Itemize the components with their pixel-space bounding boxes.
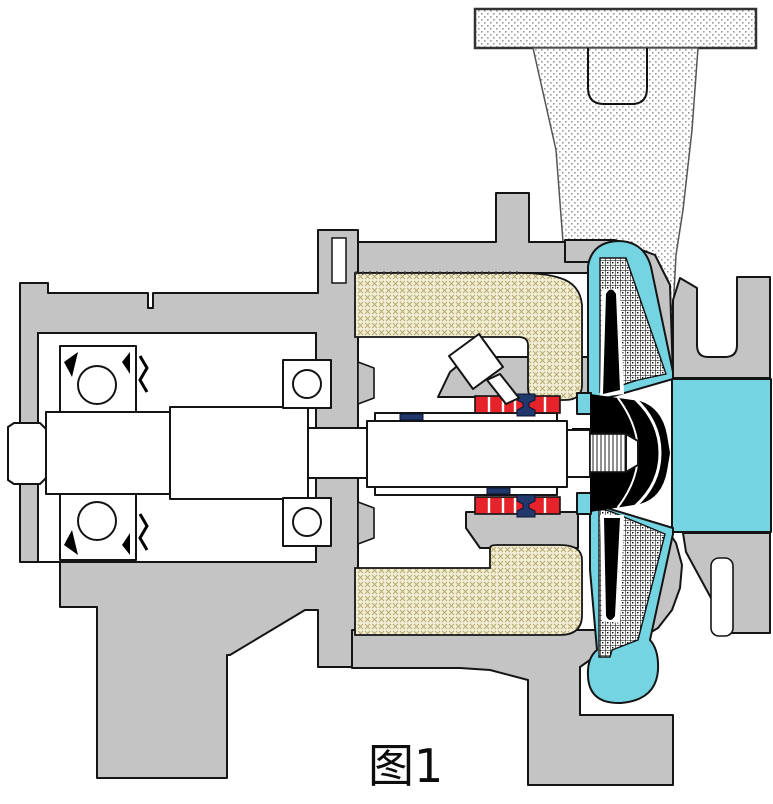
discharge-flange [475, 9, 756, 48]
bearing-ball [78, 502, 116, 540]
bearing-ball [293, 370, 321, 398]
shaft-end-left [8, 423, 46, 484]
shaft-thread-tip [626, 434, 638, 472]
pump-cross-section-drawing: 图1 [0, 0, 773, 804]
figure-canvas: 图1 [0, 0, 773, 804]
flange-pocket-bottom [711, 558, 733, 636]
outer-magnet-bottom [355, 545, 582, 635]
shaft-threads [590, 434, 626, 472]
rotor-sleeve-bottom [375, 487, 557, 495]
sleeve-key-top [400, 414, 423, 420]
shaft-step [567, 430, 590, 477]
shaft-neck-section [308, 428, 368, 478]
liquid-slot-bottom [577, 493, 591, 514]
inner-rotor-core [367, 421, 567, 487]
lantern-step-bottom [358, 502, 374, 544]
sleeve-key-bottom [487, 488, 510, 494]
lantern-step-top [358, 362, 374, 404]
figure-caption: 图1 [368, 739, 443, 793]
bearing-ball [293, 508, 321, 536]
shaft-bearing-journal [46, 412, 170, 494]
bracket-rib-slot [332, 238, 346, 283]
shaft-mid-section [170, 407, 308, 499]
suction-chamber [672, 379, 771, 532]
bearing-ball [78, 366, 116, 404]
suction-flange-top [673, 277, 770, 378]
liquid-slot-top [577, 393, 591, 414]
